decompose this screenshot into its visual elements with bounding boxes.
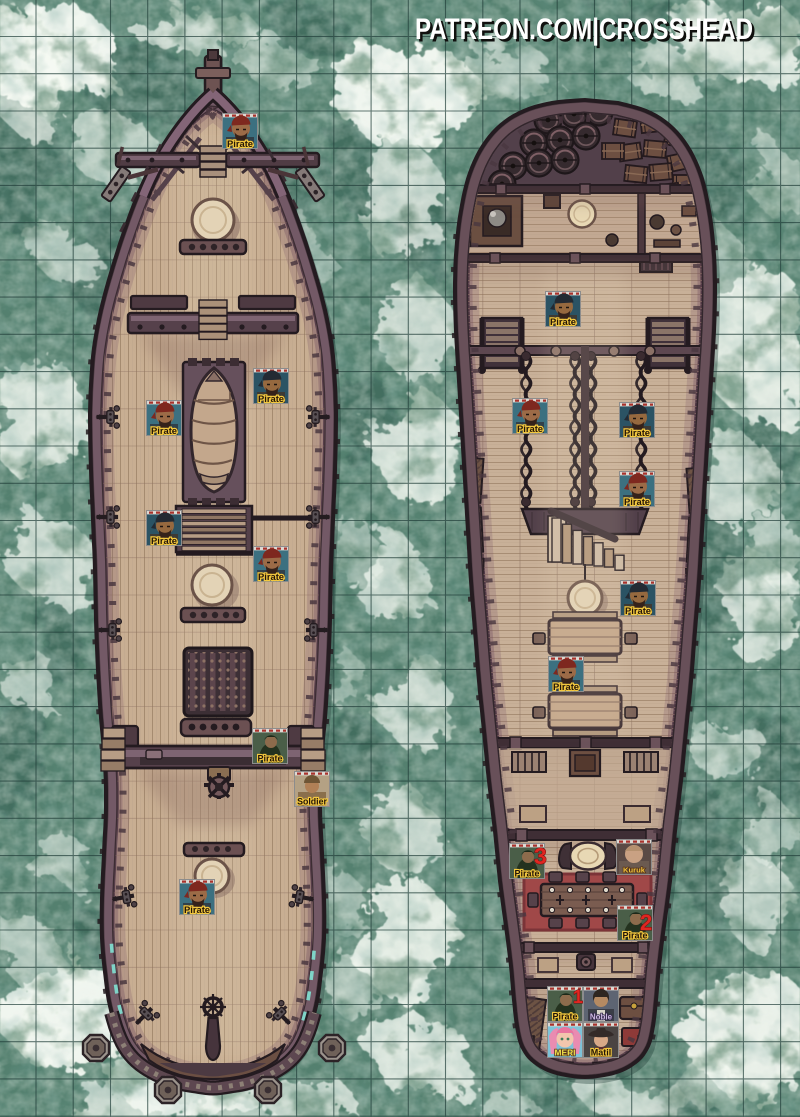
svg-text:1: 1: [573, 987, 583, 1007]
svg-text:PATREON.COM|CROSSHEAD: PATREON.COM|CROSSHEAD: [415, 13, 753, 46]
svg-text:3: 3: [534, 843, 547, 869]
svg-text:2: 2: [640, 910, 652, 935]
